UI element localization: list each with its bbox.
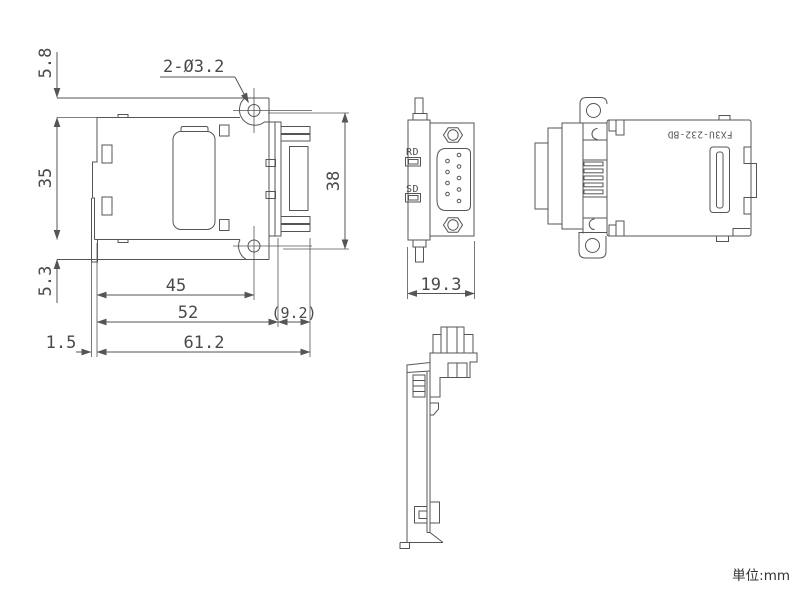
front-view-outline	[57, 88, 312, 300]
board-slot	[710, 147, 730, 213]
bottom-view: FX3U-232-BD	[535, 98, 757, 259]
dim-label-35: 35	[36, 168, 56, 188]
tab-hole-top	[587, 104, 601, 118]
dim-label-52: 52	[178, 303, 198, 323]
bottom-view-outline	[535, 98, 757, 259]
side-view-outline	[406, 98, 475, 262]
led-label-rd: RD	[406, 147, 419, 158]
dim-label-61-2: 61.2	[184, 333, 225, 353]
component-block	[173, 132, 215, 230]
dim-label-45: 45	[166, 276, 186, 296]
dsub-connector-front	[266, 122, 310, 236]
side-view: RD SD 19.3	[406, 98, 475, 299]
dim-label-5-3: 5.3	[36, 266, 56, 297]
drawing-canvas: 5.8 35 5.3 2-Ø3.2 45 52 (9.2) 61.2 1.5 3…	[0, 0, 800, 600]
technical-drawing-page: 5.8 35 5.3 2-Ø3.2 45 52 (9.2) 61.2 1.5 3…	[0, 0, 800, 600]
units-note: 単位:mm	[732, 568, 790, 584]
dsub-shell-side	[535, 123, 583, 229]
dim-label-38: 38	[324, 171, 344, 191]
dim-label-1-5: 1.5	[46, 333, 77, 353]
profile-view	[400, 327, 477, 549]
dsub9-face	[437, 149, 471, 211]
dim-label-9-2: (9.2)	[271, 304, 316, 322]
tab-hole-bottom	[586, 239, 600, 253]
led-label-sd: SD	[406, 184, 419, 195]
dim-label-hole-note: 2-Ø3.2	[163, 57, 224, 77]
front-view: 5.8 35 5.3 2-Ø3.2 45 52 (9.2) 61.2 1.5 3…	[36, 48, 349, 357]
product-label: FX3U-232-BD	[667, 129, 732, 140]
dim-label-19-3: 19.3	[421, 275, 462, 295]
dim-label-5-8: 5.8	[36, 48, 56, 79]
contact-fingers	[584, 162, 603, 194]
profile-view-outline	[400, 327, 477, 549]
